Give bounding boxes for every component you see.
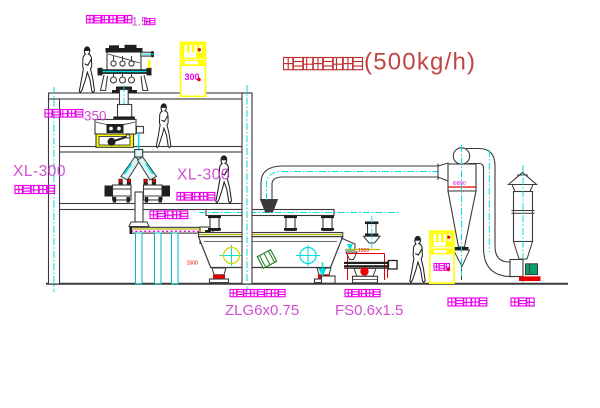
svg-text:Φ800: Φ800 [453,181,466,187]
svg-text:XL-300: XL-300 [177,167,230,184]
svg-text:350: 350 [84,109,107,124]
svg-text:(500kg/h): (500kg/h) [364,49,476,76]
svg-text:XL-300: XL-300 [13,163,66,180]
svg-text:1500: 1500 [187,261,199,267]
svg-text:ZLG6x0.75: ZLG6x0.75 [225,302,299,319]
svg-text:1500: 1500 [358,248,369,254]
svg-text:FS0.6x1.5: FS0.6x1.5 [335,302,403,319]
svg-text:300: 300 [185,72,200,82]
